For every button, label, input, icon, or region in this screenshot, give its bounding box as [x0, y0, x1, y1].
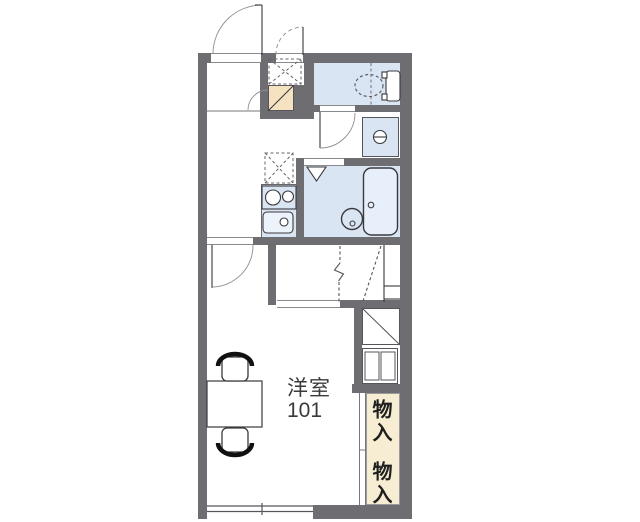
toilet-icon [355, 63, 400, 105]
toilet-door-swing-icon [320, 112, 355, 148]
wash-basin-icon [342, 209, 363, 230]
room-label: 洋室 101 [287, 378, 331, 422]
shelf-unit-icon [365, 352, 395, 380]
sink-icon [263, 212, 293, 233]
bathtub-icon [364, 168, 398, 235]
counter-box-diagonal [362, 308, 400, 345]
plan-linework [0, 0, 640, 522]
closet-label-1: 物入 [371, 399, 395, 445]
chair-top-icon [218, 354, 252, 381]
outside-storage-door-swing-icon [276, 27, 303, 55]
sliding-window-icon [207, 503, 313, 515]
closet-label-2: 物入 [371, 461, 395, 507]
stove-icon [262, 186, 296, 209]
room-number: 101 [287, 400, 331, 422]
entry-step-icon [248, 85, 294, 111]
loft-ladder-icon [335, 245, 401, 302]
bath-folding-door-icon [307, 167, 326, 181]
table-icon [207, 381, 262, 427]
floor-plan: 洋室 101 物入 物入 [0, 0, 640, 522]
entrance-door-swing-icon [213, 5, 262, 55]
refrigerator-space-icon [265, 153, 293, 183]
outside-storage-space-icon [269, 59, 301, 84]
chair-bottom-icon [218, 428, 252, 455]
room-door-swing-icon [212, 245, 253, 288]
washing-machine-faucet-icon [374, 131, 387, 144]
room-name: 洋室 [287, 378, 331, 400]
